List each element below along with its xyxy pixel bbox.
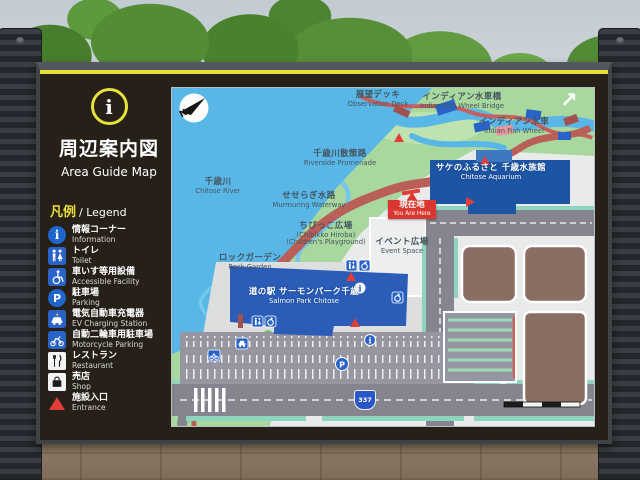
map-label-childrens-playground: ちびっこ広場(Chibikko Hiroba)(Children's Playg…: [278, 222, 374, 247]
parking-icon: P: [48, 289, 66, 307]
map-wheelchair-icon: [359, 260, 370, 271]
map-motorcycle-icon: [208, 350, 220, 361]
ev-charging-icon: [48, 310, 66, 328]
map-toilet-icon: [346, 260, 357, 271]
legend-item-parking: P 駐車場Parking: [48, 289, 170, 307]
legend-item-ev-charging: 電気自動車充電器EV Charging Station: [48, 310, 170, 328]
map-label-murmuring-waterway: せせらぎ水路Murmuring Waterway: [256, 192, 362, 209]
guide-map: P i i: [172, 88, 594, 426]
yellow-accent-stripe: [40, 70, 608, 74]
route-337-badge: 337: [354, 390, 376, 410]
legend-heading: 凡例/ Legend: [50, 201, 170, 220]
map-label-riverside-promenade: 千歳川散策路Riverside Promenade: [290, 150, 390, 167]
shop-icon: [48, 373, 66, 391]
page-title: 周辺案内図: [48, 134, 170, 161]
toilet-icon: [48, 247, 66, 265]
legend-heading-jp: 凡例: [50, 205, 76, 220]
legend-item-information: i 情報コーナーInformation: [48, 226, 170, 244]
svg-text:P: P: [339, 361, 345, 370]
map-label-rock-garden: ロックガーデンRock Garden: [204, 254, 296, 271]
page-title-en: Area Guide Map: [48, 165, 170, 179]
map-toilet-icon-2: [252, 316, 263, 327]
east-parking-shape: [444, 312, 516, 382]
map-wheelchair-icon-2: [265, 316, 276, 327]
parking-lot-shape: [180, 332, 474, 384]
legend-item-shop: 売店Shop: [48, 373, 170, 391]
guide-signboard: i 周辺案内図 Area Guide Map 凡例/ Legend i 情報コー…: [36, 62, 612, 444]
map-wheelchair-icon-3: [392, 292, 403, 303]
map-label-chitose-aquarium: サケのふるさと 千歳水族館Chitose Aquarium: [416, 164, 566, 181]
you-are-here-badge: 現在地You Are Here: [388, 200, 436, 219]
restaurant-icon: [48, 352, 66, 370]
svg-text:i: i: [368, 336, 371, 346]
map-label-event-space: イベント広場Event Space: [370, 238, 434, 255]
map-ev-charging-icon: [236, 338, 248, 349]
legend-item-entrance: 施設入口Entrance: [48, 394, 170, 412]
legend-heading-en: / Legend: [79, 206, 127, 219]
offmap-direction-arrow-icon: ↗: [560, 88, 578, 112]
legend-item-accessible: 車いす等用設備Accessible Facility: [48, 268, 170, 286]
wheelchair-icon: [48, 268, 66, 286]
title-and-legend-panel: i 周辺案内図 Area Guide Map 凡例/ Legend i 情報コー…: [48, 76, 170, 436]
scale-bar: [504, 402, 580, 407]
map-label-chitose-river: 千歳川Chitose River: [182, 178, 254, 195]
map-information-icon-2: i: [365, 335, 376, 346]
legend-item-restaurant: レストランRestaurant: [48, 352, 170, 370]
entrance-icon: [48, 394, 66, 412]
map-label-salmon-park-chitose: 道の駅 サーモンパーク千歳Salmon Park Chitose: [224, 288, 384, 305]
photo-of-area-guide-sign: i 周辺案内図 Area Guide Map 凡例/ Legend i 情報コー…: [0, 0, 640, 480]
information-icon: i: [48, 226, 66, 244]
information-circle-icon: i: [91, 88, 128, 125]
legend-item-motorcycle: 自動二輪車用駐車場Motorcycle Parking: [48, 331, 170, 349]
motorcycle-icon: [48, 331, 66, 349]
map-parking-icon: P: [336, 358, 349, 371]
map-label-indian-fish-wheel-bridge: インディアン水車橋Indian Fish Wheel Bridge: [410, 93, 514, 110]
legend-item-toilet: トイレToilet: [48, 247, 170, 265]
map-label-indian-fish-wheel: インディアン水車Indian Fish Wheel: [464, 118, 564, 135]
information-glyph: i: [105, 95, 113, 119]
